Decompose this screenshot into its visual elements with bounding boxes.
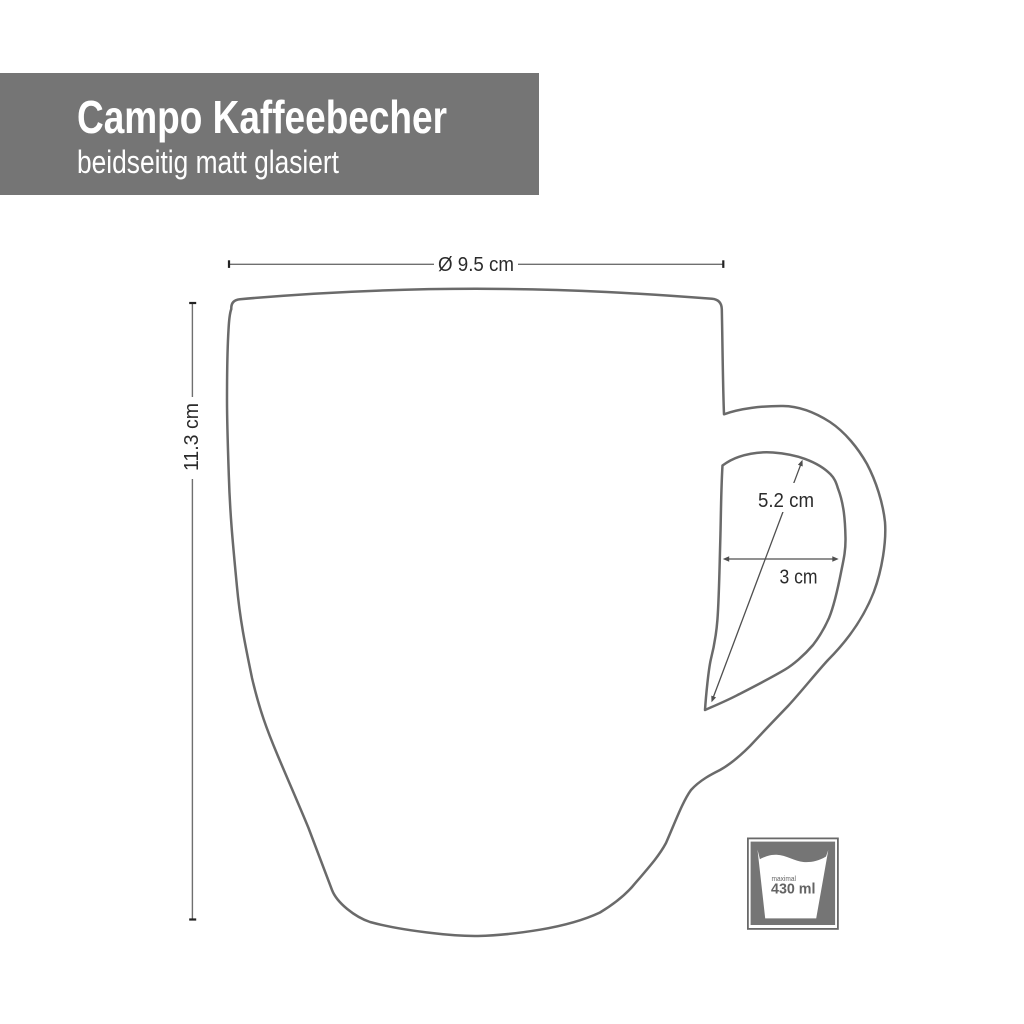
svg-text:5.2 cm: 5.2 cm <box>758 490 814 512</box>
svg-text:beidseitig matt glasiert: beidseitig matt glasiert <box>77 144 339 180</box>
svg-text:11.3 cm: 11.3 cm <box>181 403 203 471</box>
svg-text:430 ml: 430 ml <box>771 882 816 898</box>
svg-text:3 cm: 3 cm <box>780 567 818 589</box>
svg-text:Campo Kaffeebecher: Campo Kaffeebecher <box>77 91 447 143</box>
svg-text:Ø 9.5 cm: Ø 9.5 cm <box>438 254 514 276</box>
